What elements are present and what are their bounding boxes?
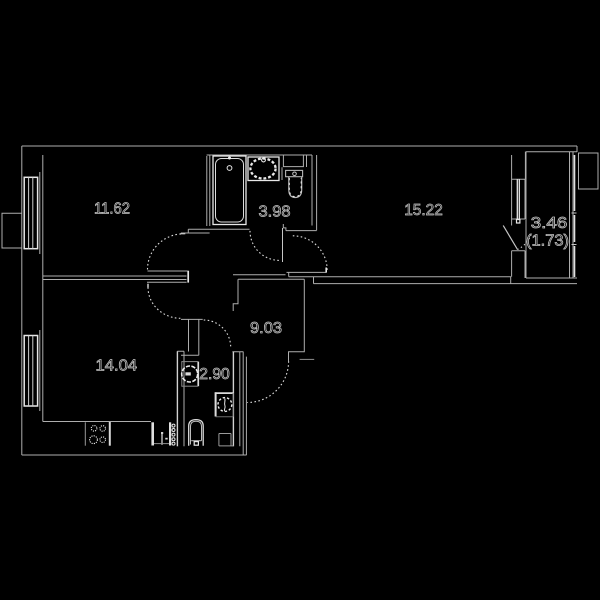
svg-text:11.62: 11.62 xyxy=(94,201,130,218)
svg-text:3.98: 3.98 xyxy=(259,203,291,220)
svg-text:2.90: 2.90 xyxy=(199,366,230,383)
svg-text:15.22: 15.22 xyxy=(404,202,443,219)
svg-text:3.46: 3.46 xyxy=(531,215,568,232)
svg-text:(1.73): (1.73) xyxy=(526,233,569,250)
svg-text:14.04: 14.04 xyxy=(96,357,138,374)
svg-text:9.03: 9.03 xyxy=(250,320,282,337)
